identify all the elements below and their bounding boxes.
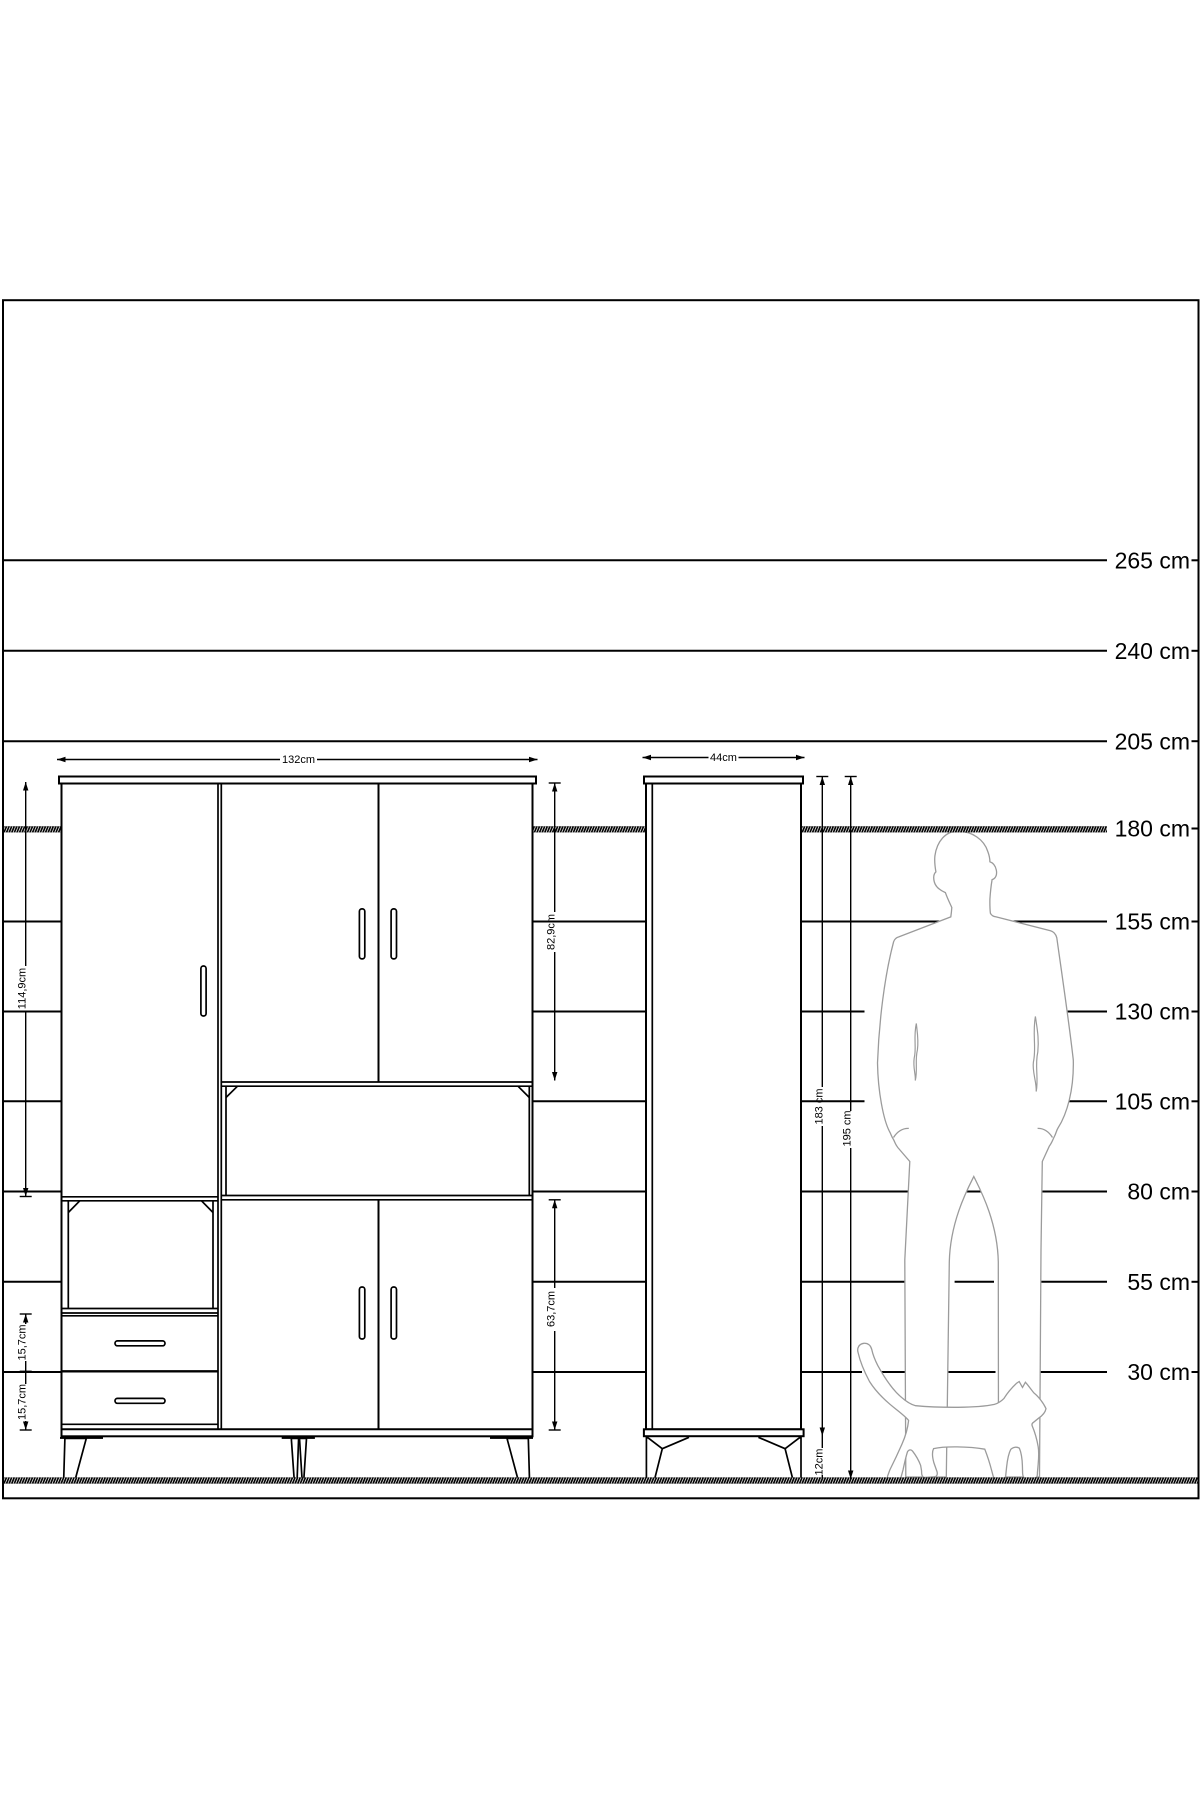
- svg-text:15,7cm: 15,7cm: [17, 1384, 29, 1420]
- svg-text:105 cm: 105 cm: [1115, 1088, 1190, 1114]
- svg-text:132cm: 132cm: [282, 754, 315, 766]
- svg-text:180 cm: 180 cm: [1115, 816, 1190, 842]
- svg-text:240 cm: 240 cm: [1115, 638, 1190, 664]
- svg-text:114,9cm: 114,9cm: [17, 968, 29, 1009]
- svg-text:12cm: 12cm: [813, 1449, 825, 1476]
- svg-text:63,7cm: 63,7cm: [546, 1291, 558, 1327]
- svg-text:15,7cm: 15,7cm: [17, 1324, 29, 1360]
- svg-text:30 cm: 30 cm: [1127, 1359, 1190, 1385]
- svg-text:205 cm: 205 cm: [1115, 728, 1190, 754]
- svg-text:195 cm: 195 cm: [842, 1110, 854, 1146]
- svg-text:44cm: 44cm: [710, 752, 737, 764]
- svg-text:265 cm: 265 cm: [1115, 547, 1190, 573]
- svg-text:82,9cm: 82,9cm: [546, 914, 558, 950]
- svg-text:155 cm: 155 cm: [1115, 909, 1190, 935]
- svg-text:130 cm: 130 cm: [1115, 999, 1190, 1025]
- svg-text:80 cm: 80 cm: [1127, 1179, 1190, 1205]
- svg-text:55 cm: 55 cm: [1127, 1269, 1190, 1295]
- svg-text:183 cm: 183 cm: [813, 1088, 825, 1124]
